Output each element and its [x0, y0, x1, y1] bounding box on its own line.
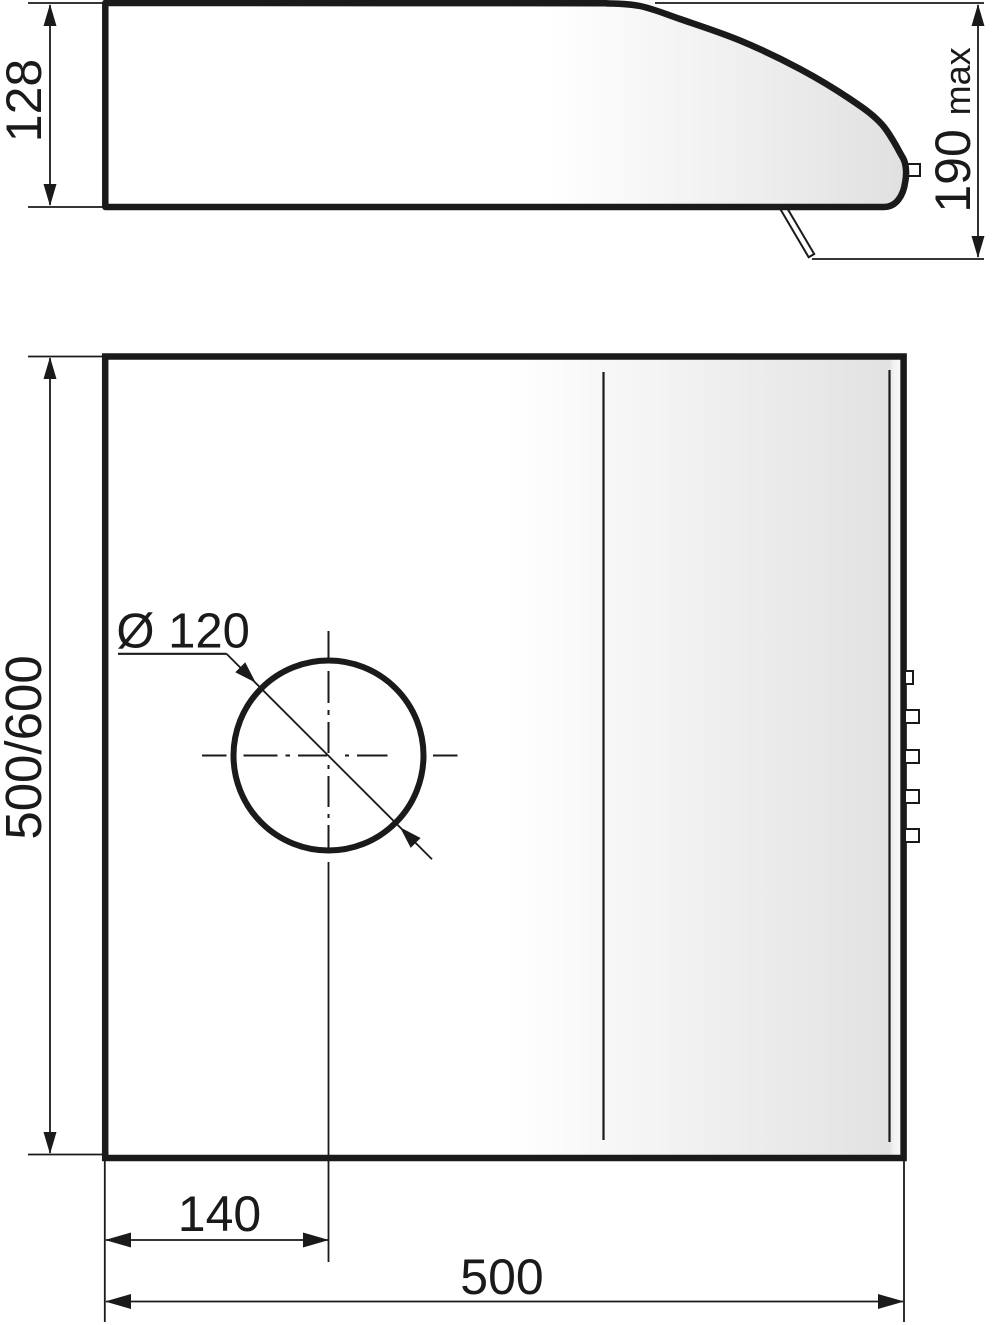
svg-text:140: 140 [178, 1186, 261, 1242]
svg-text:500: 500 [460, 1249, 543, 1305]
svg-text:500/600: 500/600 [0, 655, 52, 839]
svg-text:190 max: 190 max [925, 47, 981, 212]
svg-text:128: 128 [0, 59, 52, 142]
svg-text:Ø 120: Ø 120 [116, 605, 249, 659]
